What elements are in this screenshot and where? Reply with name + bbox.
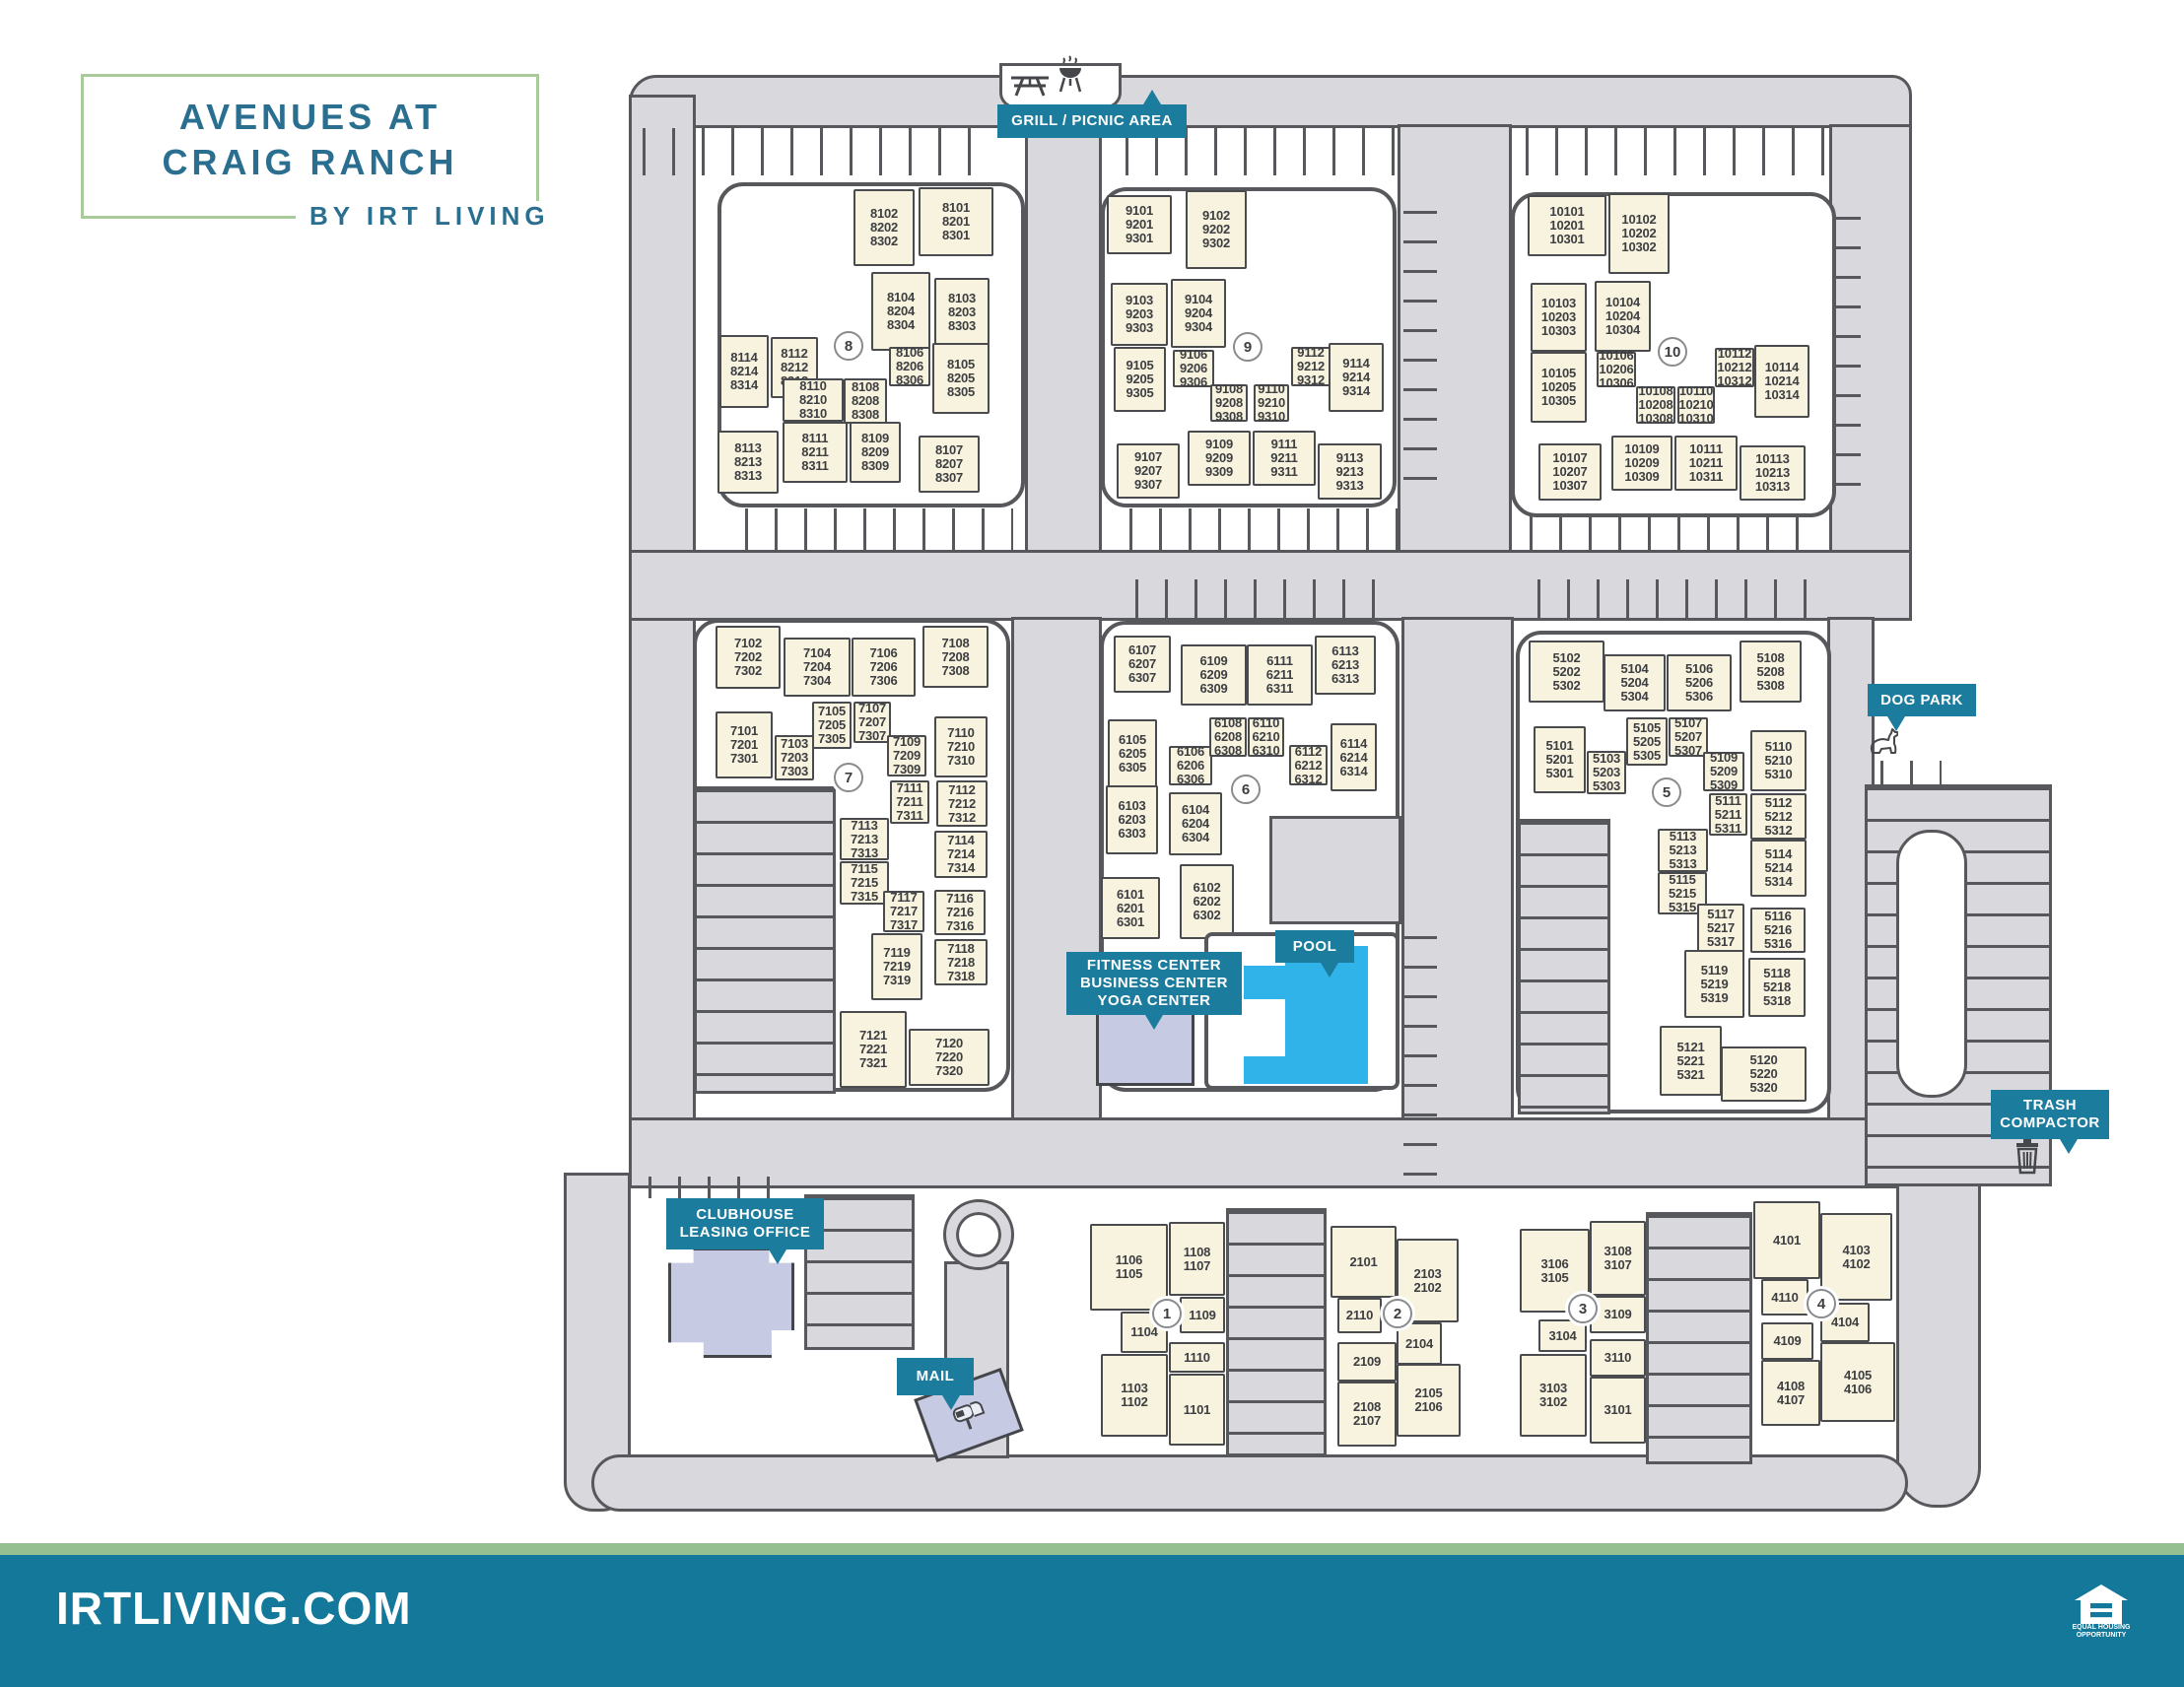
unit-block: 3109: [1590, 1296, 1646, 1333]
road-vertical-7-6: [1011, 617, 1102, 1121]
unit-block: 910692069306: [1173, 350, 1214, 387]
building-number-badge: 10: [1658, 337, 1687, 367]
unit-block: 101101021010310: [1677, 386, 1715, 424]
unit-block: 610162016301: [1101, 877, 1160, 939]
unit-block: 710672067306: [852, 638, 916, 697]
unit-block: 810882088308: [844, 378, 887, 424]
unit-block: 610262026302: [1180, 864, 1234, 939]
callout-trash-compactor: TRASHCOMPACTOR: [1991, 1090, 2109, 1139]
callout-dog-park: DOG PARK: [1868, 684, 1976, 716]
unit-block: 710972097309: [887, 735, 926, 776]
unit-block: 2110: [1337, 1298, 1382, 1333]
building-number-badge: 3: [1568, 1294, 1598, 1323]
unit-block: 511052105310: [1750, 730, 1807, 791]
unit-block: 4110: [1761, 1279, 1809, 1316]
building-number-badge: 6: [1231, 775, 1261, 804]
unit-block: 510452045304: [1604, 654, 1666, 711]
unit-block: 101091020910309: [1611, 436, 1672, 491]
parking-stalls: [1880, 761, 1942, 786]
building-number-badge: 9: [1233, 332, 1263, 362]
dog-icon: [1867, 725, 1898, 755]
unit-block: 101121021210312: [1715, 348, 1754, 387]
unit-block: 101111021110311: [1674, 436, 1738, 491]
building-number-badge: 1: [1152, 1299, 1182, 1328]
unit-block: 510352035303: [1587, 751, 1626, 794]
parking-stalls: [1537, 579, 1825, 619]
unit-block: 610662066306: [1169, 746, 1212, 785]
unit-block: 511352135313: [1658, 829, 1708, 872]
unit-block: 711072107310: [934, 716, 988, 777]
unit-block: 31083107: [1590, 1221, 1646, 1296]
unit-block: 911292129312: [1291, 347, 1331, 386]
parking-stalls: [745, 508, 1013, 550]
unit-block: 712072207320: [909, 1029, 990, 1086]
footer-green-stripe: [0, 1543, 2184, 1555]
road-top: [629, 75, 1912, 128]
unit-block: 4109: [1761, 1322, 1813, 1360]
parking-lot-between-3-4: [1646, 1212, 1752, 1464]
unit-block: 611062106310: [1248, 717, 1284, 757]
unit-block: 810982098309: [850, 422, 901, 483]
unit-block: 510252025302: [1529, 641, 1604, 703]
unit-block: 712172217321: [840, 1011, 907, 1088]
unit-block: 911192119311: [1253, 431, 1316, 486]
building-number-badge: 5: [1652, 777, 1681, 807]
unit-block: 611462146314: [1331, 723, 1377, 791]
unit-block: 711272127312: [936, 780, 988, 827]
unit-block: 910592059305: [1114, 347, 1166, 412]
unit-block: 811182118311: [783, 422, 848, 483]
unit-block: 910392039303: [1111, 283, 1168, 346]
building-number-badge: 2: [1383, 1299, 1412, 1328]
parking-stalls: [1403, 936, 1437, 1177]
unit-block: 11061105: [1090, 1224, 1168, 1311]
unit-block: 711872187318: [934, 939, 988, 985]
unit-block: 101011020110301: [1528, 195, 1606, 256]
unit-block: 41054106: [1820, 1342, 1895, 1422]
property-name-line2: CRAIG RANCH: [81, 140, 539, 185]
unit-block: 511852185318: [1748, 958, 1806, 1017]
unit-block: 811482148314: [719, 335, 769, 408]
unit-block: 511252125312: [1750, 793, 1807, 840]
unit-block: 810682068306: [889, 347, 930, 386]
parking-stalls: [1129, 508, 1398, 550]
unit-block: 1101: [1169, 1374, 1225, 1446]
unit-block: 610862086308: [1209, 717, 1247, 757]
unit-block: 710872087308: [922, 626, 989, 688]
unit-block: 711472147314: [934, 831, 988, 878]
parking-stalls: [1135, 579, 1394, 619]
unit-block: 512152215321: [1660, 1026, 1722, 1096]
site-map-page: 8102820283028101820183018104820483048103…: [0, 0, 2184, 1687]
unit-block: 41034102: [1820, 1213, 1892, 1301]
unit-block: 711972197319: [871, 933, 922, 1000]
callout-clubhouse: CLUBHOUSELEASING OFFICE: [666, 1198, 824, 1249]
unit-block: 910292029302: [1186, 190, 1247, 269]
unit-block: 610762076307: [1114, 636, 1171, 693]
unit-block: 101061020610306: [1597, 352, 1636, 387]
callout-pointer: [2060, 1139, 2078, 1154]
road-trash-compactor: [1896, 1179, 1981, 1508]
unit-block: 611262126312: [1289, 745, 1328, 785]
unit-block: 101141021410314: [1754, 345, 1809, 418]
unit-block: 911392139313: [1318, 443, 1382, 500]
unit-block: 711672167316: [934, 890, 986, 935]
unit-block: 710472047304: [784, 638, 851, 697]
unit-block: 101081020810308: [1636, 386, 1675, 424]
unit-block: 711372137313: [840, 818, 889, 860]
unit-block: 4101: [1753, 1201, 1820, 1279]
unit-block: 510952095309: [1703, 752, 1744, 791]
callout-pointer: [1321, 963, 1338, 978]
building-number-badge: 8: [834, 331, 863, 361]
building-number-badge: 7: [834, 763, 863, 792]
unit-block: 511452145314: [1750, 840, 1807, 897]
unit-block: 510852085308: [1740, 641, 1802, 703]
unit-block: 511152115311: [1709, 793, 1747, 836]
unit-block: 710572057305: [812, 702, 852, 749]
unit-block: 810182018301: [919, 187, 993, 256]
unit-block: 810782078307: [919, 436, 980, 493]
building-number-badge: 4: [1807, 1289, 1836, 1318]
unit-block: 101031020310303: [1531, 283, 1587, 352]
unit-block: 3110: [1590, 1339, 1646, 1377]
callout-mail: MAIL: [897, 1358, 974, 1395]
equal-housing-logo: EQUAL HOUSING OPPORTUNITY: [2062, 1585, 2141, 1640]
unit-block: 2109: [1337, 1342, 1397, 1382]
parking-lot-cluster-7: [694, 786, 836, 1094]
unit-block: 3104: [1538, 1319, 1587, 1352]
unit-block: 910992099309: [1188, 431, 1251, 486]
trash-can-icon: [2014, 1137, 2040, 1175]
unit-block: 511752175317: [1697, 904, 1744, 953]
unit-block: 510752075307: [1669, 717, 1708, 757]
unit-block: 810482048304: [871, 272, 930, 351]
property-name: AVENUES AT CRAIG RANCH: [81, 95, 539, 185]
unit-block: 510152015301: [1534, 726, 1586, 793]
unit-block: 510652065306: [1667, 654, 1732, 711]
unit-block: 610362036303: [1106, 785, 1158, 854]
unit-block: 911492149314: [1329, 343, 1384, 412]
unit-block: 2104: [1397, 1322, 1442, 1365]
unit-block: 711572157315: [840, 861, 889, 905]
unit-block: 512052205320: [1721, 1046, 1807, 1102]
road-left: [629, 95, 696, 1179]
unit-block: 1110: [1169, 1342, 1225, 1373]
picnic-table-icon: [1009, 71, 1051, 97]
unit-block: 810382038303: [934, 278, 990, 347]
unit-block: 810282028302: [853, 189, 915, 266]
unit-block: 910792079307: [1117, 443, 1180, 499]
roundabout: [946, 1202, 1011, 1267]
parking-lot-cluster-5: [1518, 819, 1610, 1114]
unit-block: 910192019301: [1107, 195, 1172, 254]
unit-block: 11081107: [1169, 1222, 1225, 1296]
parking-stalls: [1403, 211, 1437, 497]
unit-block: 101131021310313: [1740, 445, 1806, 501]
unit-block: 811382138313: [717, 431, 779, 494]
callout-fitness-center: FITNESS CENTERBUSINESS CENTERYOGA CENTER: [1066, 952, 1242, 1015]
brand-byline: BY IRT LIVING: [296, 201, 564, 232]
unit-block: 611162116311: [1247, 644, 1313, 706]
unit-block: 610462046304: [1169, 792, 1222, 855]
callout-pointer: [1145, 1015, 1163, 1030]
unit-block: 511652165316: [1750, 908, 1806, 953]
unit-block: 610562056305: [1108, 719, 1157, 788]
website-link[interactable]: IRTLIVING.COM: [56, 1582, 412, 1635]
unit-block: 3101: [1590, 1377, 1646, 1444]
unit-block: 511952195319: [1684, 950, 1744, 1018]
parking-lot-between-1-2: [1226, 1208, 1327, 1456]
unit-block: 710272027302: [716, 626, 781, 689]
unit-block: 811082108310: [783, 378, 844, 422]
unit-block: 1109: [1180, 1297, 1225, 1333]
unit-block: 101051020510305: [1531, 352, 1587, 423]
unit-block: 610962096309: [1181, 644, 1247, 706]
callout-pointer: [1143, 90, 1161, 104]
unit-block: 710372037303: [775, 735, 814, 780]
unit-block: 810582058305: [932, 343, 990, 414]
unit-block: 41084107: [1761, 1360, 1820, 1426]
parking-island: [1896, 830, 1967, 1098]
equal-housing-label: EQUAL HOUSING OPPORTUNITY: [2062, 1624, 2141, 1640]
callout-pointer: [942, 1395, 960, 1410]
unit-block: 101041020410304: [1595, 281, 1651, 352]
grill-icon: [1057, 55, 1084, 95]
unit-block: 31033102: [1520, 1354, 1587, 1437]
parking-stalls: [1526, 128, 1831, 175]
road-bottom-horizontal: [629, 1117, 1912, 1188]
callout-pointer: [769, 1249, 786, 1264]
parking-stalls: [643, 128, 988, 175]
parking-stalls: [648, 1177, 775, 1198]
unit-block: 710172017301: [716, 711, 773, 778]
unit-block: 710772077307: [853, 702, 891, 743]
unit-block: 910492049304: [1171, 279, 1226, 348]
road-vertical-8-9: [1025, 124, 1102, 554]
unit-block: 21082107: [1337, 1382, 1397, 1447]
unit-block: 711772177317: [883, 891, 924, 932]
unit-block: 911092109310: [1254, 384, 1289, 422]
unit-block: 101021020210302: [1608, 193, 1670, 274]
unit-block: 910892089308: [1210, 384, 1248, 422]
unit-block: 711172117311: [890, 780, 929, 824]
unit-block: 11031102: [1101, 1354, 1168, 1437]
garage-block: [1269, 816, 1401, 924]
unit-block: 510552055305: [1626, 717, 1668, 766]
unit-block: 2101: [1331, 1226, 1397, 1298]
callout-pool: POOL: [1275, 930, 1354, 963]
unit-block: 101071020710307: [1538, 443, 1602, 501]
unit-block: 21052106: [1397, 1364, 1461, 1437]
unit-block: 611362136313: [1315, 636, 1376, 695]
callout-grill-picnic-area: GRILL / PICNIC AREA: [997, 104, 1187, 138]
property-name-line1: AVENUES AT: [81, 95, 539, 140]
